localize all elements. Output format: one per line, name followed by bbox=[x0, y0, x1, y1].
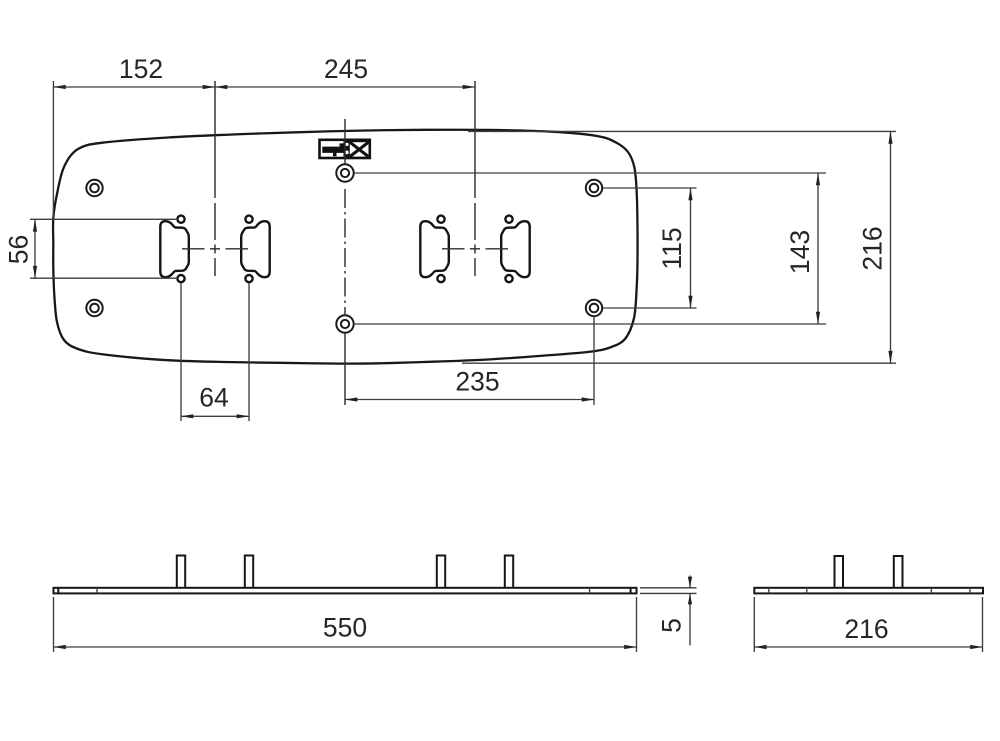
svg-text:115: 115 bbox=[657, 227, 687, 269]
svg-text:5: 5 bbox=[657, 618, 687, 633]
svg-text:216: 216 bbox=[858, 226, 888, 270]
svg-text:56: 56 bbox=[4, 235, 34, 264]
svg-text:143: 143 bbox=[785, 230, 815, 274]
svg-text:64: 64 bbox=[199, 383, 228, 413]
svg-text:235: 235 bbox=[455, 367, 499, 397]
svg-text:216: 216 bbox=[844, 614, 888, 644]
svg-text:245: 245 bbox=[324, 54, 368, 84]
svg-text:550: 550 bbox=[323, 613, 367, 643]
svg-text:152: 152 bbox=[119, 54, 163, 84]
